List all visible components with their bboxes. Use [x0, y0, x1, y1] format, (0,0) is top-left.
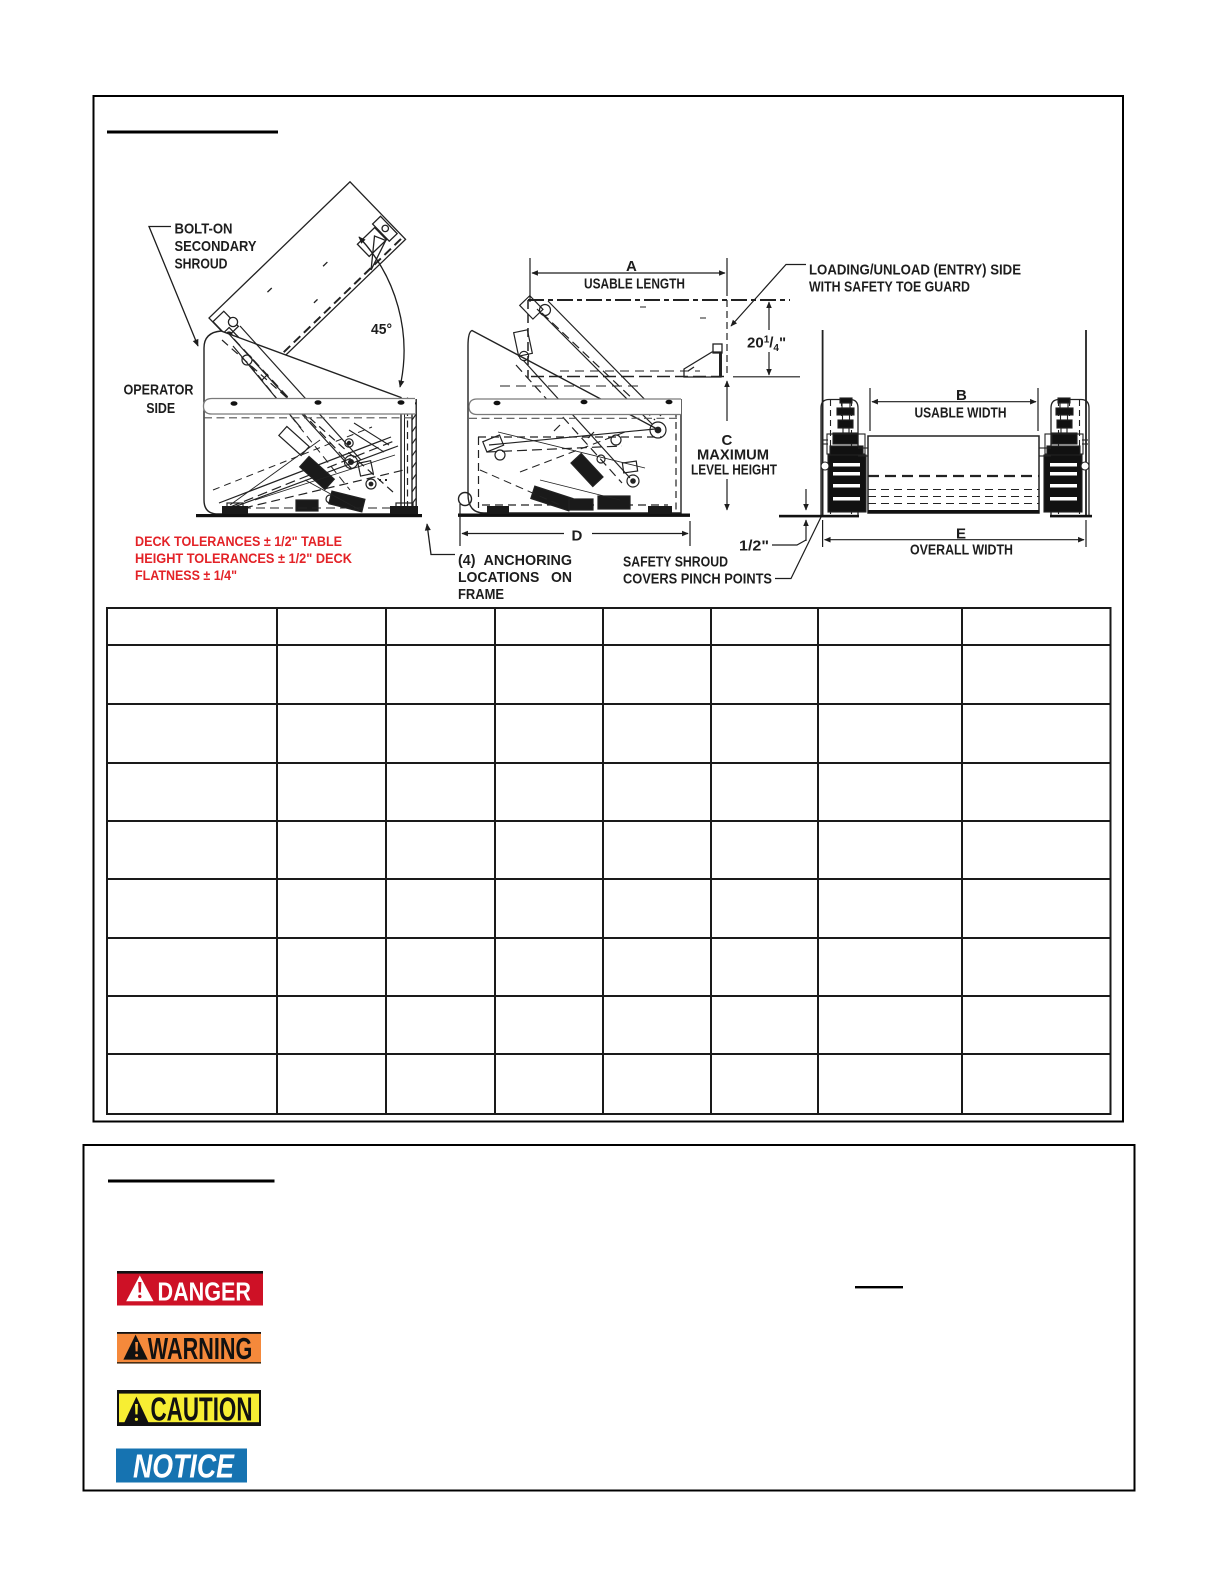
svg-text:B: B	[956, 387, 967, 404]
svg-text:SECONDARY: SECONDARY	[175, 238, 257, 255]
svg-text:COVERS PINCH POINTS: COVERS PINCH POINTS	[623, 571, 772, 588]
svg-text:(4) ANCHORING: (4) ANCHORING	[458, 552, 572, 569]
svg-text:SIDE: SIDE	[146, 400, 175, 417]
svg-text:BOLT-ON: BOLT-ON	[175, 221, 233, 238]
svg-text:SAFETY SHROUD: SAFETY SHROUD	[623, 554, 728, 571]
svg-text:OPERATOR: OPERATOR	[124, 381, 194, 398]
svg-text:A: A	[626, 258, 637, 275]
svg-text:D: D	[572, 528, 583, 545]
svg-text:NOTICE: NOTICE	[133, 1448, 235, 1485]
svg-text:LEVEL HEIGHT: LEVEL HEIGHT	[691, 462, 777, 479]
svg-text:WARNING: WARNING	[148, 1331, 253, 1366]
svg-text:DANGER: DANGER	[158, 1279, 252, 1307]
svg-text:E: E	[956, 526, 966, 543]
svg-text:FRAME: FRAME	[458, 586, 504, 603]
svg-text:45°: 45°	[371, 321, 392, 338]
svg-text:201/4": 201/4"	[747, 335, 786, 355]
svg-text:CAUTION: CAUTION	[151, 1390, 253, 1427]
svg-text:WITH SAFETY TOE GUARD: WITH SAFETY TOE GUARD	[809, 278, 970, 295]
svg-text:DECK TOLERANCES ± 1/2" TABLE: DECK TOLERANCES ± 1/2" TABLE	[135, 534, 342, 550]
svg-text:1/2": 1/2"	[739, 538, 769, 555]
svg-text:OVERALL WIDTH: OVERALL WIDTH	[910, 542, 1013, 559]
svg-text:FLATNESS ± 1/4": FLATNESS ± 1/4"	[135, 568, 237, 584]
svg-text:USABLE WIDTH: USABLE WIDTH	[915, 405, 1007, 422]
svg-text:USABLE LENGTH: USABLE LENGTH	[584, 276, 685, 293]
svg-text:LOADING/UNLOAD (ENTRY) SIDE: LOADING/UNLOAD (ENTRY) SIDE	[809, 262, 1021, 279]
svg-text:HEIGHT TOLERANCES ± 1/2" DECK: HEIGHT TOLERANCES ± 1/2" DECK	[135, 551, 353, 567]
svg-text:LOCATIONS ON: LOCATIONS ON	[458, 569, 572, 586]
svg-text:SHROUD: SHROUD	[175, 256, 228, 273]
